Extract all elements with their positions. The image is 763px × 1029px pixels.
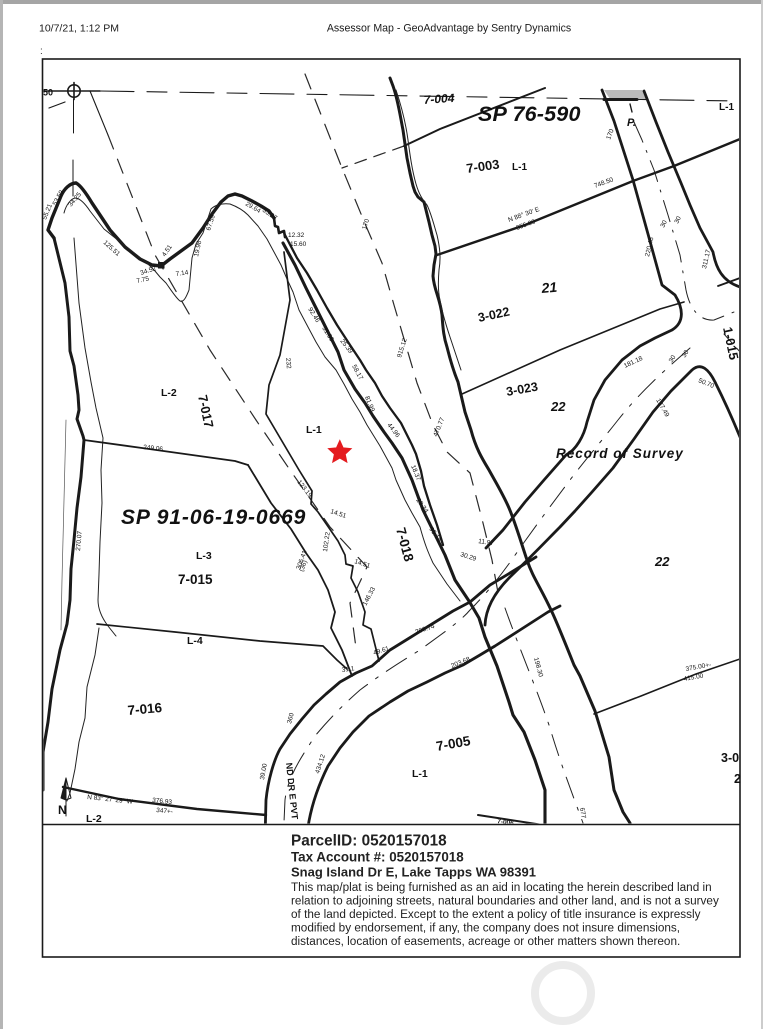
svg-text:Record of Survey: Record of Survey	[556, 446, 684, 461]
svg-text:L-2: L-2	[161, 387, 177, 399]
svg-text:7-016: 7-016	[127, 700, 163, 718]
svg-text:P.: P.	[627, 117, 636, 129]
svg-text:7-015: 7-015	[178, 572, 213, 587]
svg-text:SP 76-590: SP 76-590	[478, 102, 581, 126]
svg-text:Snag Island Dr E, Lake Tapps W: Snag Island Dr E, Lake Tapps WA 98391	[291, 865, 536, 880]
svg-text:22: 22	[654, 554, 670, 569]
svg-text:10/7/21, 1:12 PM: 10/7/21, 1:12 PM	[39, 23, 119, 35]
svg-text:ParcelID: 0520157018: ParcelID: 0520157018	[291, 833, 447, 850]
svg-text:L-1: L-1	[719, 102, 734, 113]
svg-text:12.32: 12.32	[288, 232, 305, 239]
svg-text:7-004: 7-004	[423, 91, 455, 107]
svg-text::: :	[40, 46, 43, 57]
svg-text:distances, location of easemen: distances, location of easements, acreag…	[291, 935, 680, 948]
svg-text:Tax Account #: 0520157018: Tax Account #: 0520157018	[291, 850, 464, 865]
svg-text:relation to adjoining streets,: relation to adjoining streets, natural b…	[291, 895, 719, 908]
svg-text:L-3: L-3	[196, 550, 212, 562]
svg-text:22: 22	[550, 399, 566, 414]
svg-text:15.60: 15.60	[290, 241, 307, 248]
svg-text:This map/plat is being furnish: This map/plat is being furnished as an a…	[291, 881, 712, 894]
svg-text:of the land depicted. Except t: of the land depicted. Except to the exte…	[291, 908, 701, 921]
svg-text:Assessor Map - GeoAdvantage by: Assessor Map - GeoAdvantage by Sentry Dy…	[327, 23, 571, 35]
svg-text:232: 232	[284, 358, 292, 370]
svg-text:3-0: 3-0	[721, 751, 739, 765]
svg-text:L-1: L-1	[412, 768, 428, 780]
svg-text:N: N	[58, 803, 67, 817]
svg-text:21: 21	[540, 279, 558, 296]
svg-text:L-2: L-2	[86, 813, 102, 825]
svg-text:L-1: L-1	[512, 162, 527, 173]
svg-text:L-1: L-1	[306, 424, 322, 436]
svg-text:L-4: L-4	[187, 635, 203, 647]
svg-text:SP 91-06-19-0669: SP 91-06-19-0669	[121, 506, 306, 529]
svg-text:2: 2	[734, 772, 741, 786]
svg-text:modified by endorsement, if an: modified by endorsement, if any, the com…	[291, 922, 680, 935]
svg-text:50: 50	[43, 88, 53, 98]
